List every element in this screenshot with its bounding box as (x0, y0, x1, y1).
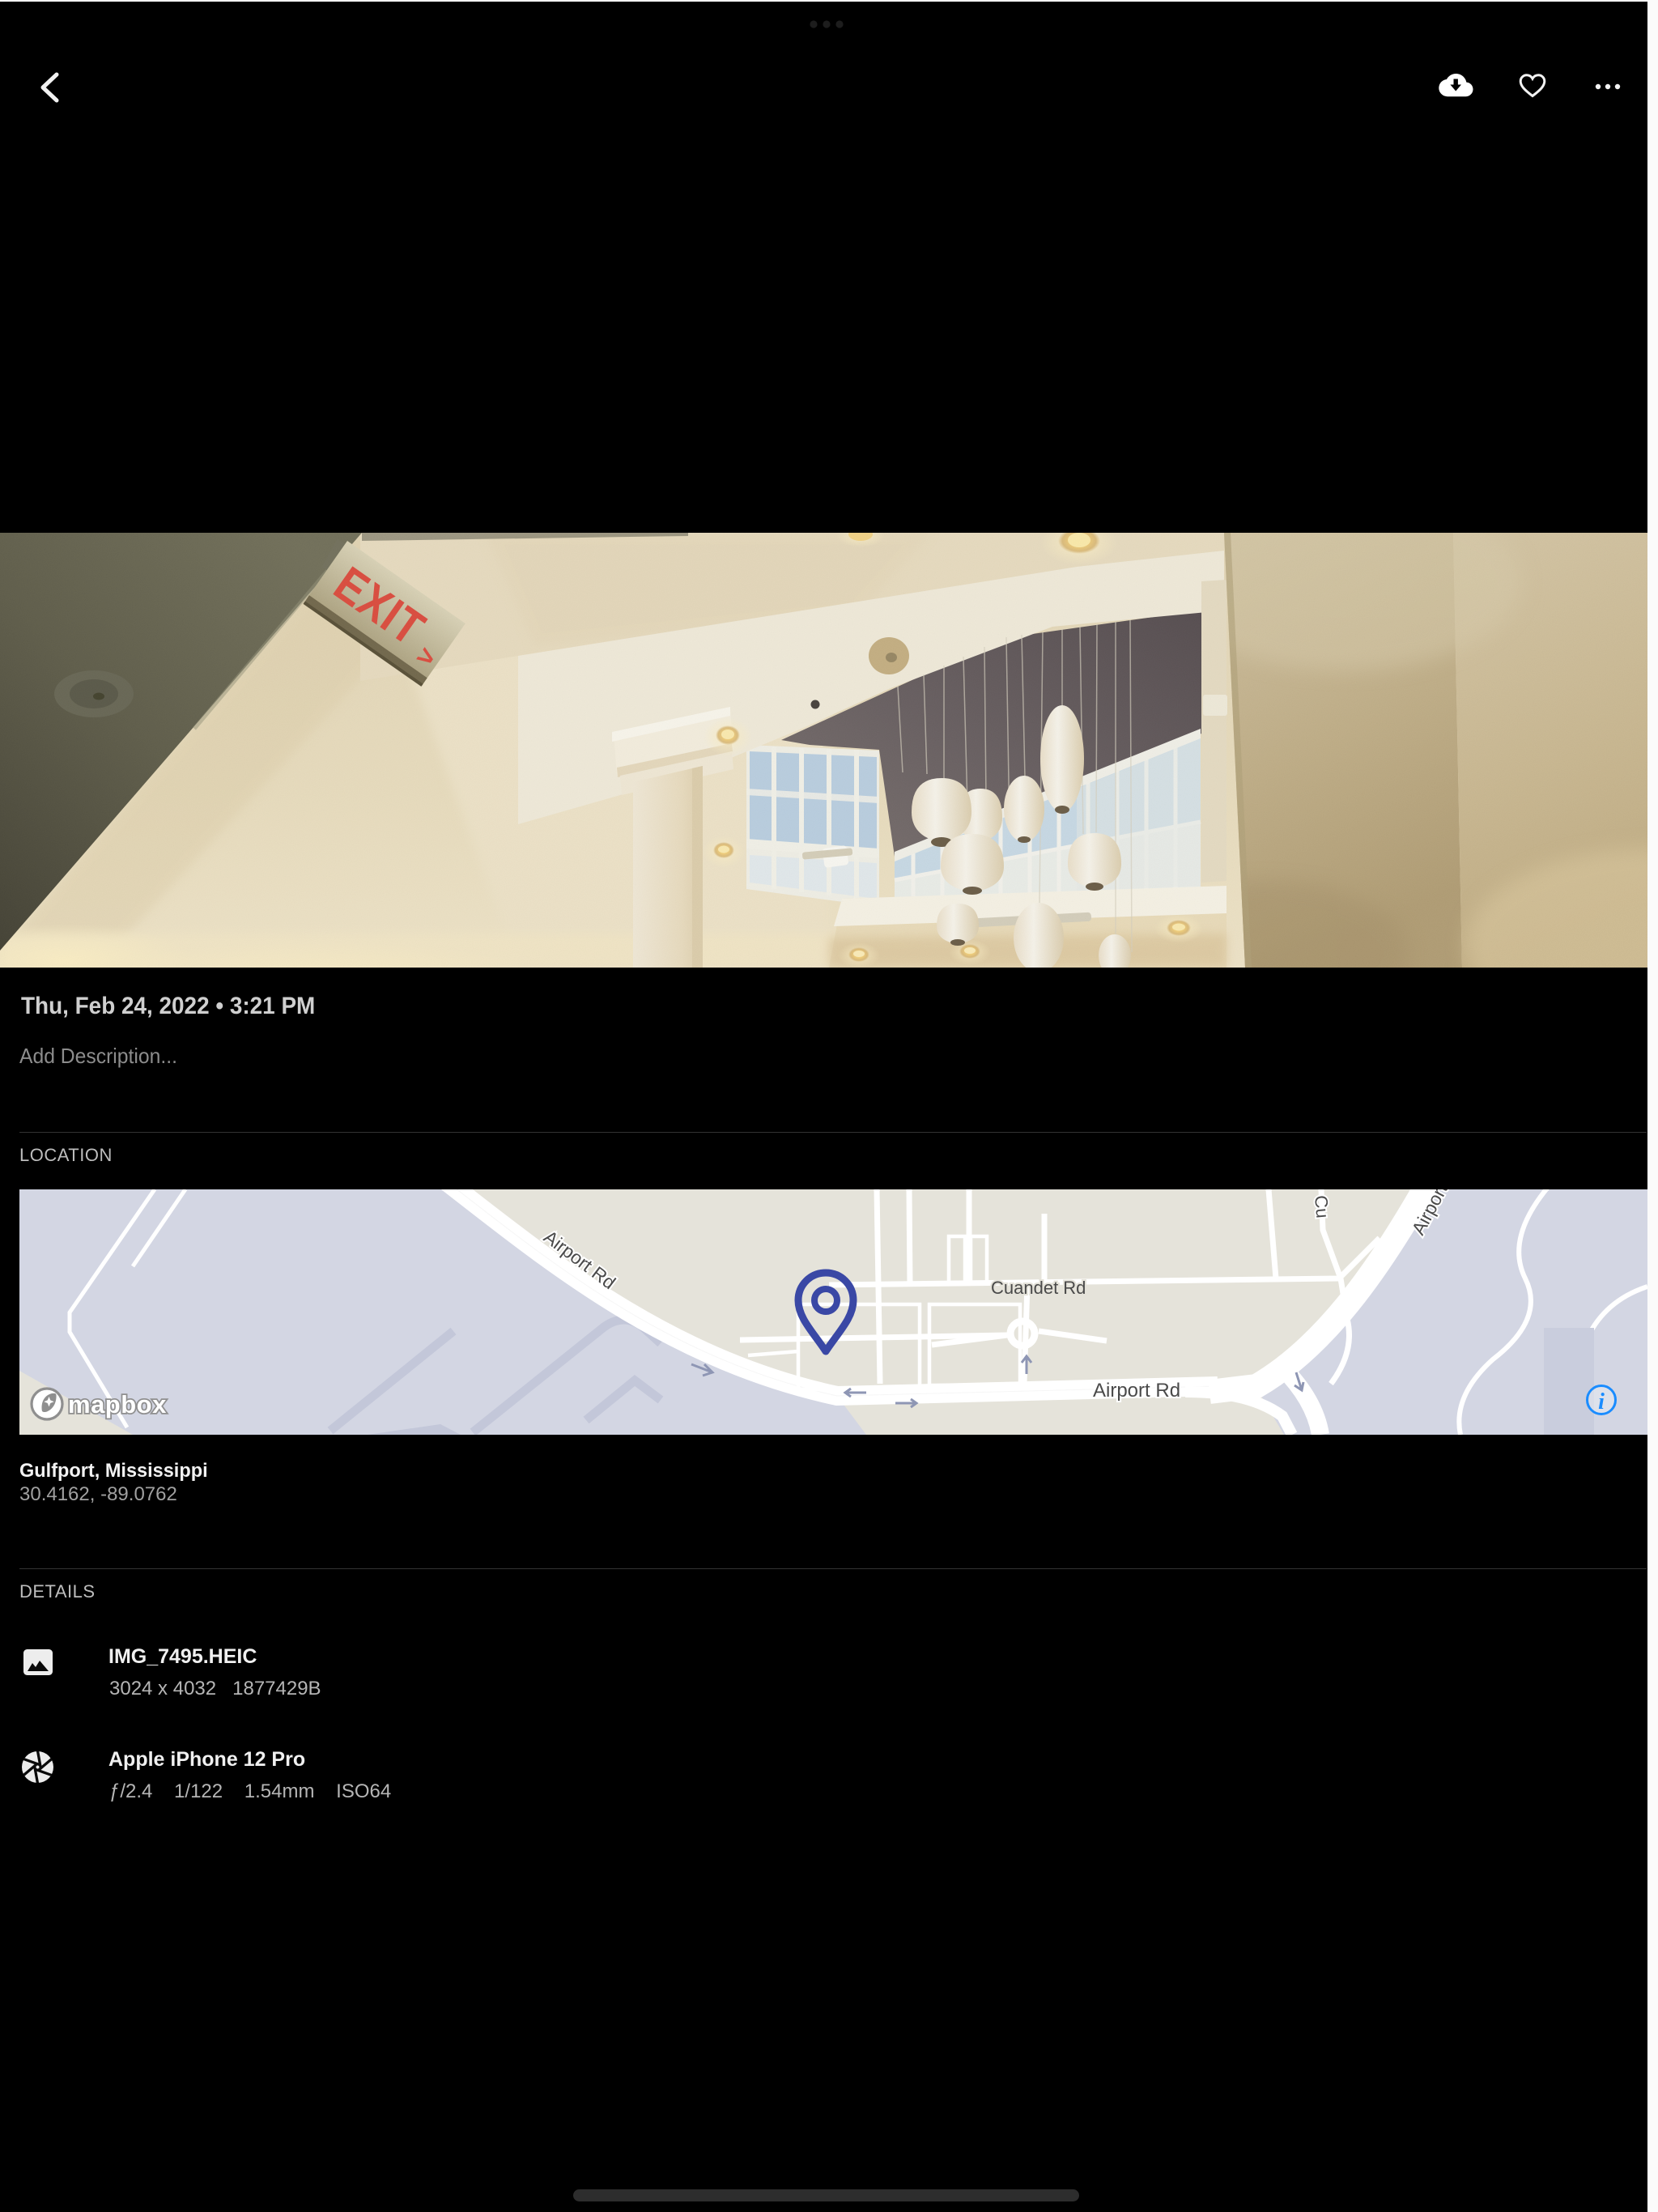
svg-text:i: i (1598, 1389, 1605, 1414)
svg-text:Cuandet Rd: Cuandet Rd (991, 1278, 1086, 1298)
svg-text:mapbox: mapbox (68, 1390, 167, 1419)
svg-text:Cu: Cu (1311, 1194, 1333, 1219)
svg-text:Airport Rd: Airport Rd (1093, 1380, 1180, 1402)
